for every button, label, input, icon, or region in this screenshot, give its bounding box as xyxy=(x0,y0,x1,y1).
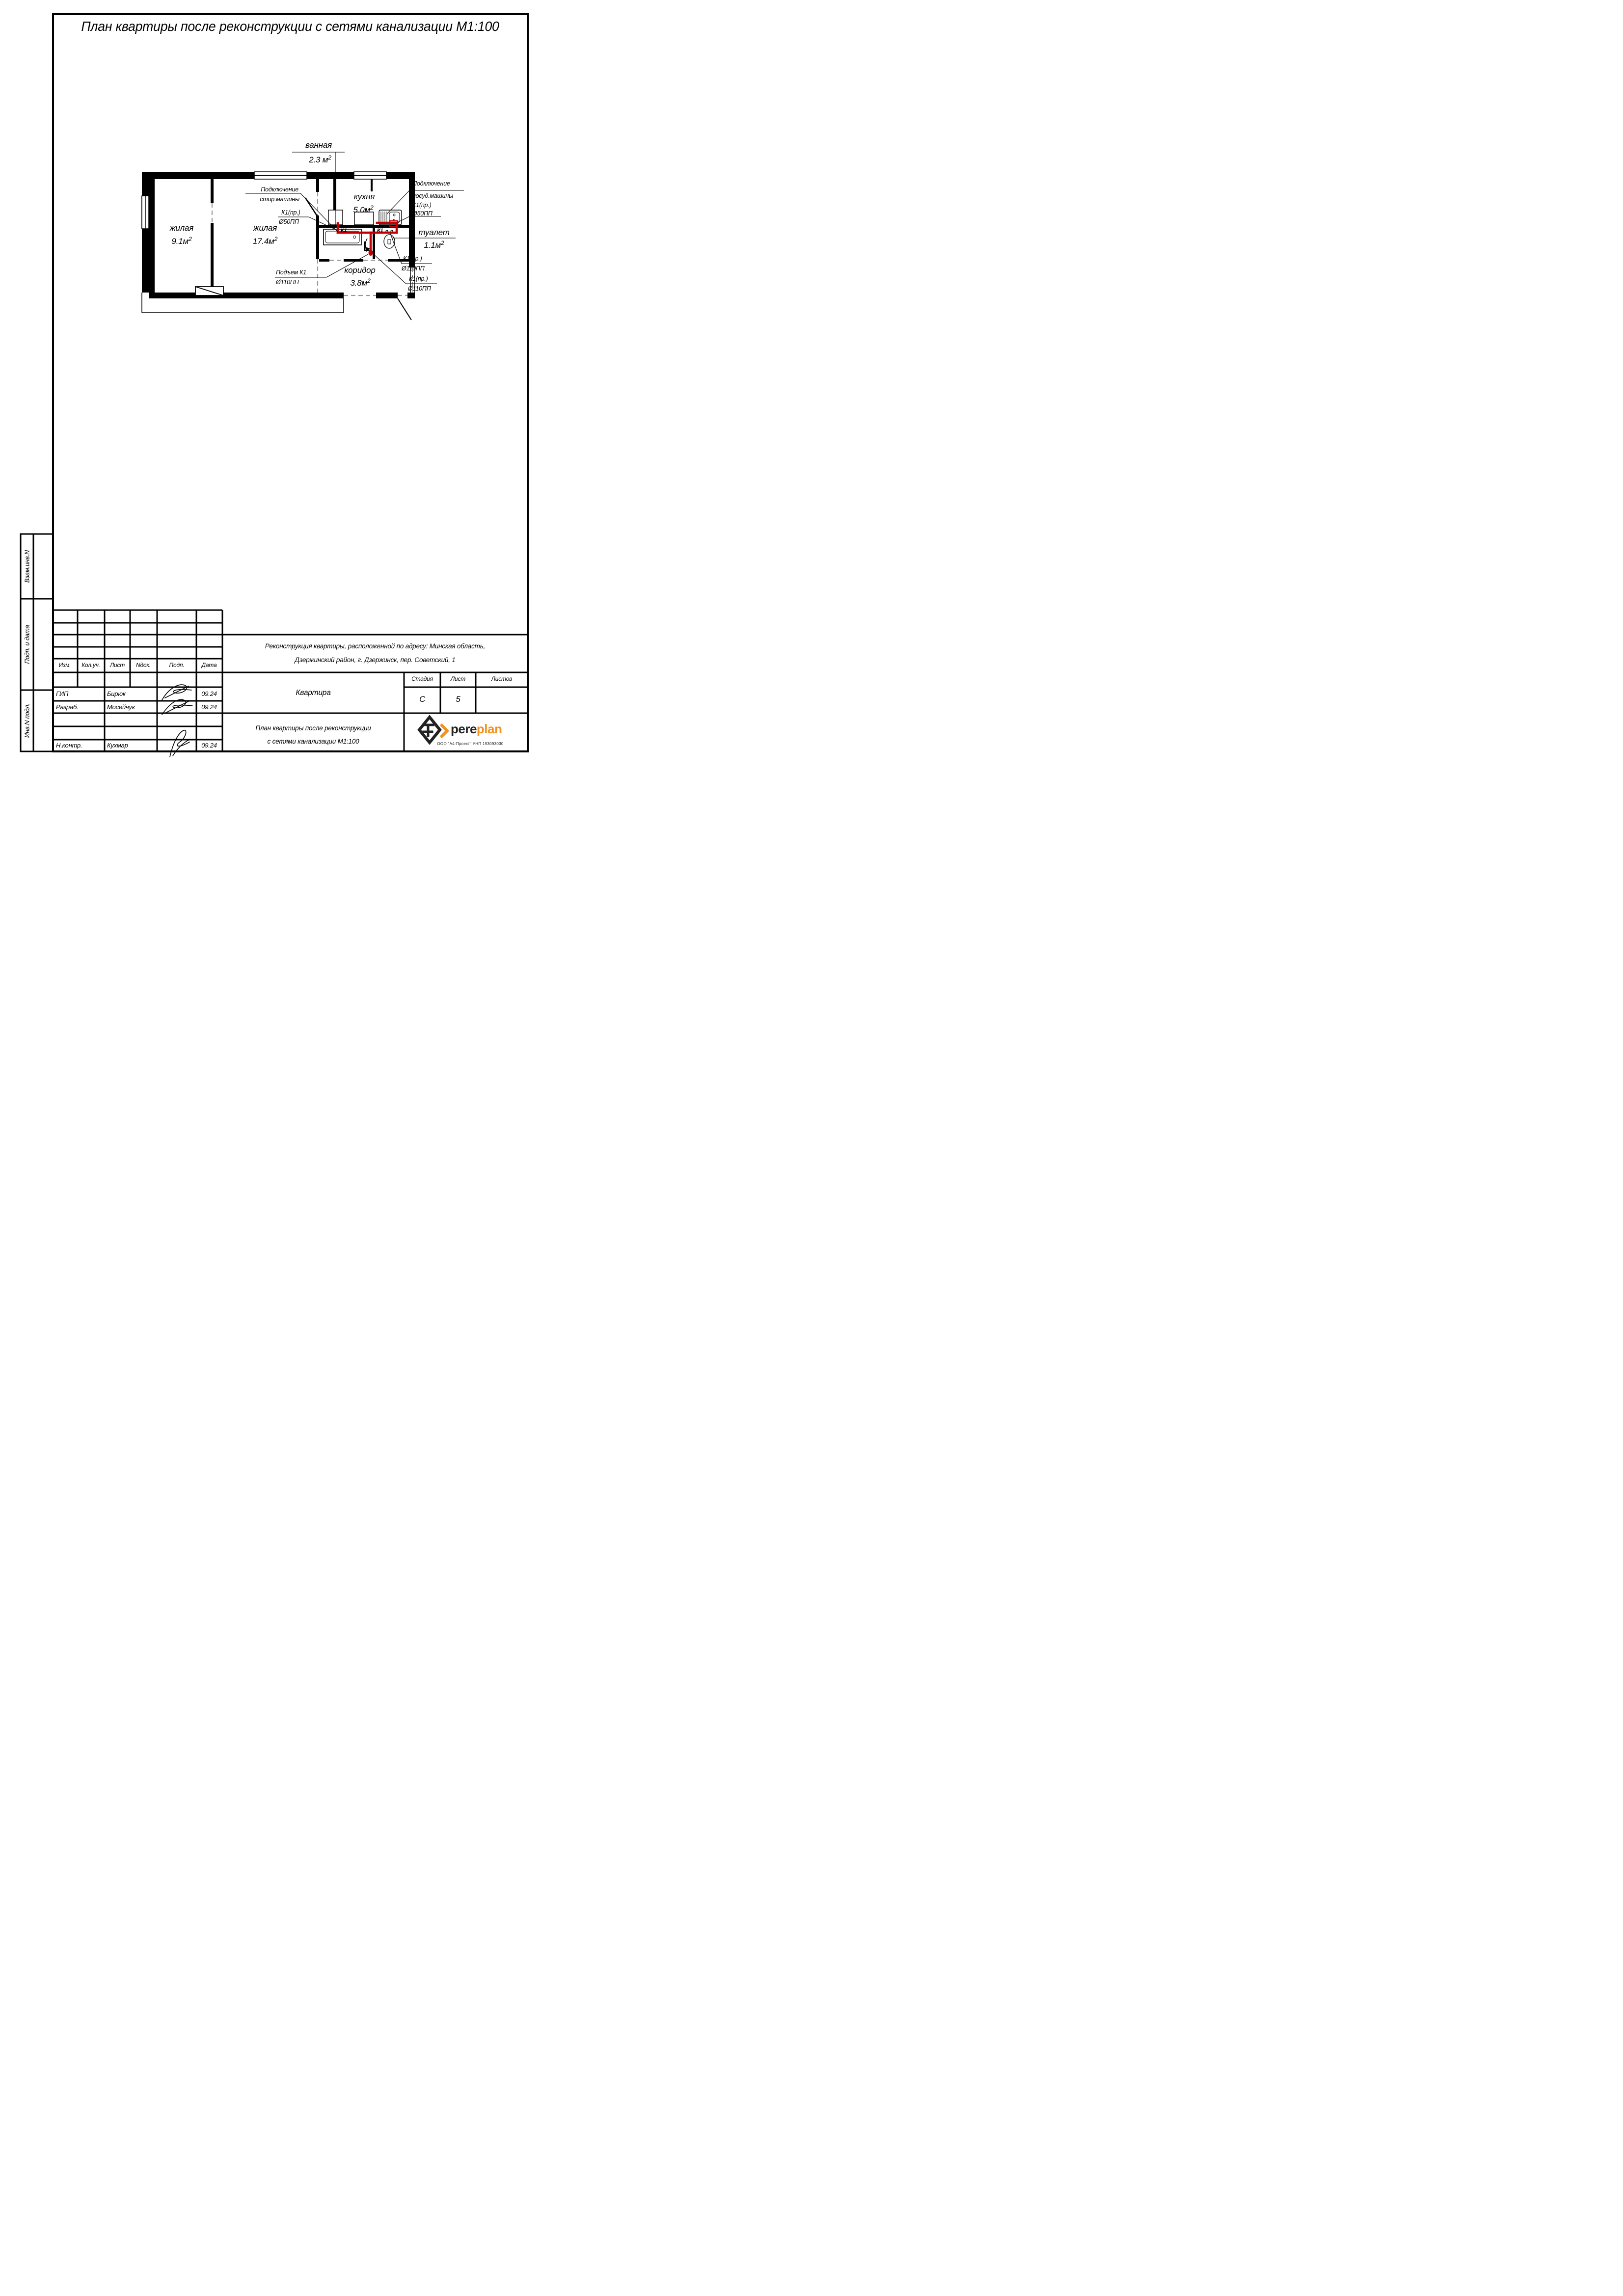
room-area-toilet: 1.1м2 xyxy=(424,240,444,249)
signer-name-razrab: Мосейчук xyxy=(107,704,135,710)
signatures xyxy=(162,685,192,757)
room-area-bathroom: 2.3 м2 xyxy=(309,155,331,164)
stage-label: Стадия xyxy=(411,676,433,682)
riser-annotation-line2: Ø110ПП xyxy=(276,279,299,286)
logo-company-line: ООО "А4-Проект" УНП 193093030 xyxy=(437,742,503,746)
window-top-1 xyxy=(254,172,307,179)
rev-header-ndok: Nдок. xyxy=(136,662,151,668)
dishwasher-annotation-line3: К1(пр.) xyxy=(412,202,432,209)
sidebar-label-vzam: Взам.инв.N xyxy=(24,550,30,583)
pipe-label-k1-a: К1 xyxy=(341,228,347,234)
stage-value: С xyxy=(419,695,425,703)
dishwasher-annotation-line1: Подключение xyxy=(412,181,450,187)
rev-header-podp: Подп. xyxy=(169,662,185,668)
room-area-living2: 17.4м2 xyxy=(253,236,277,245)
washer-annotation-line2: стир.машины xyxy=(260,196,299,203)
toilet-pipe-annotation-line1: К1(пр.) xyxy=(403,256,422,262)
washer-annotation-line1: Подключение xyxy=(261,187,298,193)
rev-header-izm: Изм. xyxy=(59,662,71,668)
project-address-line1: Реконструкция квартиры, расположенной по… xyxy=(265,643,485,650)
drawing-title-line2: с сетями канализации М1:100 xyxy=(268,738,359,745)
drawing-title-line1: План квартиры после реконструкции xyxy=(255,725,371,732)
object-name: Квартира xyxy=(296,689,330,697)
project-address-line2: Дзержинский район, г. Дзержинск, пер. Со… xyxy=(295,657,455,664)
corridor-pipe-annotation-line2: Ø110ПП xyxy=(408,286,431,292)
sheet-frame xyxy=(53,14,528,751)
logo-wordmark: pereplan xyxy=(451,722,502,735)
riser-annotation-line1: Подъем К1 xyxy=(276,269,306,276)
washer-pipe-annotation-line1: К1(пр.) xyxy=(281,210,300,216)
sheet-label: Лист xyxy=(451,676,465,682)
signer-date-gip: 09.24 xyxy=(201,691,217,697)
signer-role-gip: ГИП xyxy=(56,691,68,697)
rev-header-data: Дата xyxy=(202,662,217,668)
signer-role-nkontr: Н.контр. xyxy=(56,742,82,748)
drawing-linework xyxy=(0,0,541,765)
sidebar-label-podp-data: Подп. и дата xyxy=(24,625,30,664)
room-label-bathroom: ванная xyxy=(305,141,332,149)
room-area-corridor: 3.8м2 xyxy=(350,278,370,287)
sheets-label: Листов xyxy=(491,676,513,682)
room-area-kitchen: 5.0м2 xyxy=(353,205,373,214)
corridor-pipe-annotation-line1: К1(пр.) xyxy=(409,276,428,282)
sheet-value: 5 xyxy=(456,695,460,703)
room-label-living2: жилая xyxy=(253,224,277,232)
toilet-pipe-annotation-line2: Ø110ПП xyxy=(402,266,425,272)
room-label-kitchen: кухня xyxy=(354,192,375,201)
dishwasher-annotation-line2: посуд.машины xyxy=(412,193,453,199)
signer-name-gip: Бирюк xyxy=(107,691,126,697)
room-label-corridor: коридор xyxy=(344,266,375,274)
window-top-2 xyxy=(354,172,386,179)
riser-point xyxy=(369,250,373,256)
room-label-toilet: туалет xyxy=(418,228,449,237)
rev-header-list: Лист xyxy=(110,662,125,668)
pereplan-logo-icon xyxy=(419,717,447,743)
sheet-title: План квартиры после реконструкции с сетя… xyxy=(81,20,499,33)
washer-pipe-annotation-line2: Ø50ПП xyxy=(279,219,299,225)
room-label-living1: жилая xyxy=(170,224,193,232)
signer-name-nkontr: Кухмар xyxy=(107,742,128,748)
pipe-label-k1-b: К1 xyxy=(377,228,383,234)
entry-door-swing xyxy=(398,298,411,320)
signer-date-nkontr: 09.24 xyxy=(201,742,217,748)
window-left xyxy=(142,196,149,229)
rev-header-koluch: Кол.уч. xyxy=(81,662,100,668)
room-area-living1: 9.1м2 xyxy=(171,236,191,245)
drawing-sheet: План квартиры после реконструкции с сетя… xyxy=(0,0,541,765)
vent-shaft xyxy=(195,287,223,295)
signer-role-razrab: Разраб. xyxy=(56,704,79,710)
dishwasher-annotation-line4: Ø50ПП xyxy=(412,211,433,217)
flow-arrow-icon xyxy=(365,239,370,252)
sidebar-label-inv: Инв.N подл. xyxy=(24,703,30,738)
signer-date-razrab: 09.24 xyxy=(201,704,217,710)
